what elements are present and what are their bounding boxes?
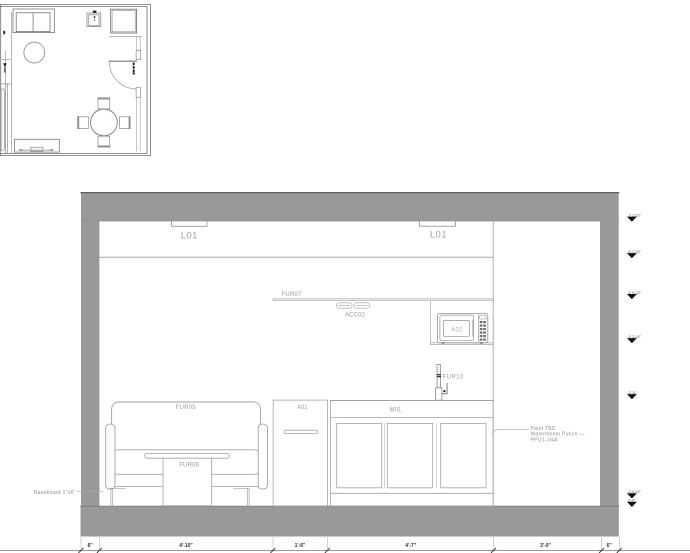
svg-text:FUR07: FUR07: [282, 292, 302, 298]
svg-text:L01: L01: [430, 230, 447, 241]
svg-text:A01: A01: [297, 405, 308, 411]
svg-text:A02: A02: [451, 326, 463, 333]
svg-text:6": 6": [607, 543, 613, 549]
svg-text:Baseboard 1"x6": Baseboard 1"x6": [34, 490, 76, 496]
svg-text:ACC02: ACC02: [345, 313, 366, 319]
svg-text:3'-0": 3'-0": [540, 543, 551, 549]
svg-text:FUR05: FUR05: [176, 405, 196, 411]
svg-text:4'-10": 4'-10": [179, 543, 193, 549]
svg-text:L01: L01: [181, 231, 198, 242]
svg-text:4'-7": 4'-7": [405, 543, 416, 549]
svg-text:PPU1–04A: PPU1–04A: [531, 437, 559, 443]
svg-text:FUR10: FUR10: [443, 375, 464, 381]
svg-text:FUR06: FUR06: [179, 462, 199, 468]
svg-text:1'-6": 1'-6": [295, 543, 306, 549]
svg-text:M01: M01: [390, 408, 402, 414]
svg-text:6": 6": [88, 543, 94, 549]
